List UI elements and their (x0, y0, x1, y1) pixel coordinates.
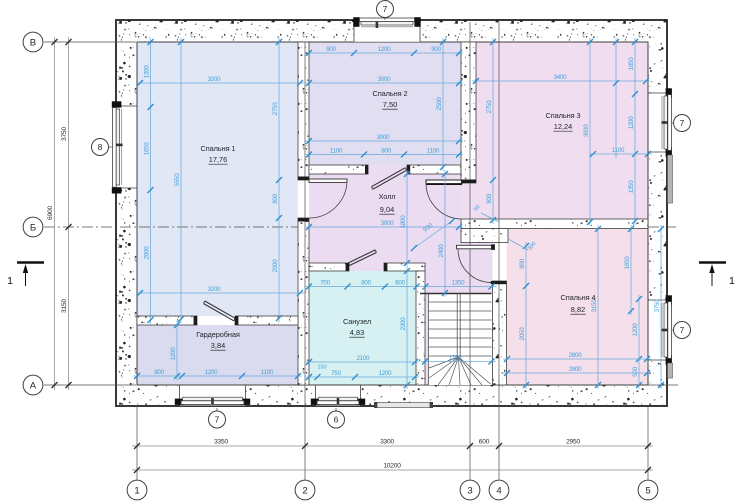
svg-text:2400: 2400 (438, 244, 445, 258)
svg-text:7: 7 (383, 4, 388, 14)
svg-text:Гардеробная: Гардеробная (196, 330, 240, 339)
svg-text:17,76: 17,76 (209, 155, 228, 164)
svg-text:Б: Б (30, 222, 36, 233)
svg-text:2050: 2050 (519, 327, 526, 341)
svg-text:1200: 1200 (170, 347, 177, 361)
svg-text:800: 800 (486, 193, 493, 203)
svg-text:2600: 2600 (143, 246, 150, 260)
svg-text:3200: 3200 (208, 76, 222, 83)
svg-text:800: 800 (381, 147, 391, 154)
svg-text:Спальня 1: Спальня 1 (201, 144, 236, 153)
svg-text:4,83: 4,83 (350, 328, 364, 337)
svg-text:3000: 3000 (377, 134, 391, 141)
svg-text:2800: 2800 (569, 352, 583, 359)
svg-text:4: 4 (496, 485, 502, 496)
svg-text:12,24: 12,24 (554, 122, 573, 131)
svg-text:1100: 1100 (612, 147, 625, 154)
svg-text:1100: 1100 (427, 147, 440, 154)
svg-text:Спальня 2: Спальня 2 (373, 89, 408, 98)
svg-text:3400: 3400 (554, 74, 568, 81)
svg-text:1350: 1350 (452, 279, 466, 286)
svg-text:3200: 3200 (208, 286, 222, 293)
svg-text:500: 500 (632, 366, 639, 376)
svg-text:7: 7 (680, 325, 685, 335)
svg-text:1100: 1100 (330, 147, 343, 154)
svg-text:2: 2 (302, 485, 307, 496)
svg-text:8: 8 (98, 142, 103, 152)
svg-text:В: В (30, 37, 36, 48)
svg-text:1300: 1300 (143, 65, 150, 79)
svg-text:2950: 2950 (566, 439, 580, 446)
svg-text:2300: 2300 (400, 317, 407, 331)
svg-text:7: 7 (680, 118, 685, 128)
svg-text:Спальня 3: Спальня 3 (546, 111, 581, 120)
svg-text:Холл: Холл (378, 192, 395, 201)
svg-text:1200: 1200 (378, 46, 392, 53)
svg-text:1250: 1250 (449, 354, 463, 361)
svg-text:8,82: 8,82 (571, 305, 585, 314)
svg-text:900: 900 (154, 369, 164, 376)
svg-text:6: 6 (334, 415, 339, 425)
svg-text:750: 750 (331, 370, 341, 377)
svg-text:1650: 1650 (624, 256, 631, 270)
svg-text:700: 700 (320, 279, 330, 286)
svg-text:1200: 1200 (632, 323, 639, 337)
svg-text:3300: 3300 (380, 439, 394, 446)
svg-text:2500: 2500 (436, 97, 443, 111)
svg-text:7,50: 7,50 (383, 100, 397, 109)
svg-text:900: 900 (431, 46, 441, 53)
svg-text:2750: 2750 (486, 100, 493, 114)
svg-text:Санузел: Санузел (343, 317, 371, 326)
svg-text:1650: 1650 (143, 142, 150, 156)
svg-text:800: 800 (519, 258, 526, 268)
svg-text:9,04: 9,04 (380, 205, 394, 214)
svg-text:1200: 1200 (205, 369, 219, 376)
svg-text:1100: 1100 (261, 369, 274, 376)
svg-text:Спальня 4: Спальня 4 (561, 293, 596, 302)
svg-text:1: 1 (134, 485, 139, 496)
svg-text:3000: 3000 (378, 76, 392, 83)
svg-text:150: 150 (317, 365, 326, 371)
svg-text:1: 1 (7, 275, 13, 287)
svg-text:3750: 3750 (654, 299, 661, 313)
svg-text:2000: 2000 (272, 259, 279, 273)
svg-text:5550: 5550 (174, 173, 181, 187)
svg-text:2800: 2800 (569, 366, 583, 373)
svg-text:3750: 3750 (61, 127, 68, 141)
svg-text:3600: 3600 (583, 124, 590, 138)
svg-text:3150: 3150 (61, 299, 68, 313)
svg-text:6900: 6900 (47, 206, 54, 220)
svg-text:1800: 1800 (400, 215, 407, 229)
svg-text:3,84: 3,84 (211, 341, 225, 350)
svg-text:5: 5 (645, 485, 650, 496)
svg-text:3000: 3000 (381, 220, 395, 227)
svg-text:1350: 1350 (628, 180, 635, 194)
svg-text:7: 7 (215, 415, 220, 425)
svg-text:1200: 1200 (628, 116, 635, 130)
svg-text:2100: 2100 (357, 355, 371, 362)
svg-text:800: 800 (272, 193, 279, 203)
svg-text:10200: 10200 (383, 463, 401, 470)
svg-text:600: 600 (479, 439, 490, 446)
svg-text:А: А (30, 380, 37, 391)
svg-text:3: 3 (467, 485, 472, 496)
svg-text:3350: 3350 (214, 439, 228, 446)
svg-text:800: 800 (361, 279, 371, 286)
svg-text:1: 1 (729, 275, 735, 287)
svg-text:2750: 2750 (272, 102, 279, 116)
svg-text:900: 900 (326, 46, 336, 53)
svg-text:600: 600 (395, 279, 405, 286)
svg-text:1050: 1050 (628, 57, 635, 71)
svg-text:1200: 1200 (379, 370, 393, 377)
